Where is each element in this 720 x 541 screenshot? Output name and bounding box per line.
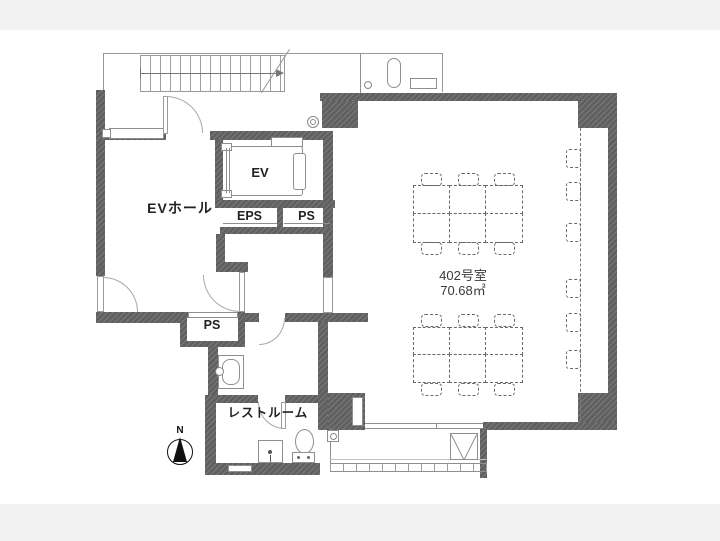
- wall-west-upper: [323, 131, 333, 277]
- wall-restroom-top-left: [205, 395, 258, 403]
- stair-arrow-icon: [276, 69, 284, 77]
- chair: [494, 383, 515, 396]
- chair: [458, 383, 479, 396]
- wash-basin-faucet-icon: [215, 367, 224, 376]
- side-chair: [566, 279, 581, 298]
- elevator-door-rail: [226, 148, 227, 193]
- elevator-counterweight: [271, 137, 303, 147]
- side-chair: [566, 223, 581, 242]
- chair: [421, 173, 442, 186]
- balcony-window: [365, 423, 483, 429]
- chair: [421, 383, 442, 396]
- wall-t-left-stub: [245, 313, 259, 322]
- label-ps-upper: PS: [283, 210, 330, 224]
- stair-start-tick: [140, 68, 141, 78]
- wall-west-lower: [318, 322, 328, 430]
- side-chair: [566, 313, 581, 332]
- label-ev-hall: EVホール: [138, 201, 222, 216]
- wall-eps-bottom: [220, 227, 333, 234]
- desk: [449, 354, 486, 383]
- restroom-bottom-vent: [228, 465, 252, 472]
- chair: [494, 173, 515, 186]
- chair: [458, 173, 479, 186]
- chair: [494, 314, 515, 327]
- side-chair: [566, 182, 581, 201]
- entry-cabinet: [109, 128, 164, 139]
- wash-basin-bowl: [222, 359, 240, 385]
- toilet-button2-icon: [307, 456, 310, 459]
- side-chair: [566, 149, 581, 168]
- elevator-pad: [293, 153, 306, 190]
- wall-restroom-bottom: [205, 463, 320, 475]
- east-layout-line: [580, 128, 581, 422]
- balcony-railing: [330, 463, 487, 472]
- wall-ne-corner-block: [578, 93, 617, 128]
- wall-left: [96, 90, 105, 276]
- equipment-bay-divider: [360, 53, 361, 93]
- desk: [413, 354, 450, 383]
- hand-sink-drain-icon: [268, 450, 272, 454]
- desk: [485, 354, 523, 383]
- desk: [485, 213, 523, 243]
- toilet-tank: [292, 452, 315, 463]
- chair: [421, 242, 442, 255]
- floor-plan-page: EVホール EV EPS PS PS レストルーム 402号室 70.68㎡ N: [0, 0, 720, 541]
- window-south-vertical: [352, 397, 363, 426]
- label-ev: EV: [245, 166, 275, 180]
- wall-restroom-top-right: [285, 395, 318, 403]
- chair: [421, 314, 442, 327]
- wall-ev-bottom: [215, 200, 335, 208]
- north-label: N: [170, 425, 190, 436]
- wall-anteroom-stub: [216, 262, 248, 272]
- label-eps: EPS: [222, 210, 277, 224]
- wall-anteroom-left: [216, 234, 225, 263]
- wall-t-horizontal: [285, 313, 368, 322]
- equipment-drain-icon: [364, 81, 372, 89]
- balcony-drain-icon: [330, 433, 337, 440]
- hand-sink-tick: [270, 455, 271, 462]
- wall-room-bottom: [483, 422, 617, 430]
- north-arrow-icon: [173, 437, 187, 462]
- anteroom-door-swing: [203, 275, 240, 312]
- side-chair: [566, 350, 581, 369]
- chair: [458, 314, 479, 327]
- chair: [458, 242, 479, 255]
- chair: [494, 242, 515, 255]
- wall-room-right: [608, 126, 617, 396]
- floor-plan-canvas: EVホール EV EPS PS PS レストルーム 402号室 70.68㎡ N: [0, 30, 720, 504]
- label-ps-lower: PS: [185, 319, 239, 333]
- label-room-number: 402号室: [418, 269, 508, 283]
- balcony-window-mid-tick: [436, 423, 437, 429]
- desk: [449, 327, 486, 355]
- desk: [449, 213, 486, 243]
- desk: [413, 213, 450, 243]
- wall-evhall-bottom: [96, 312, 182, 323]
- equipment-box: [410, 78, 437, 89]
- entry-meter-box: [102, 129, 111, 138]
- cleanout-inner-icon: [310, 119, 316, 125]
- evhall-west-door-swing: [103, 277, 138, 312]
- desk: [413, 327, 450, 355]
- washroom-door-swing: [259, 318, 285, 345]
- label-restroom: レストルーム: [220, 407, 316, 421]
- toilet-bowl: [295, 429, 314, 454]
- toilet-button-icon: [297, 456, 300, 459]
- desk: [485, 327, 523, 355]
- water-heater: [387, 58, 401, 88]
- desk: [413, 185, 450, 214]
- room402-door-leaf: [323, 277, 333, 313]
- desk: [449, 185, 486, 214]
- entry-door-swing: [166, 96, 203, 133]
- label-room-area: 70.68㎡: [418, 284, 508, 298]
- elevator-door-rail2: [229, 148, 230, 193]
- desk: [485, 185, 523, 214]
- stair-center-line: [140, 73, 278, 74]
- wall-room-top: [320, 93, 617, 101]
